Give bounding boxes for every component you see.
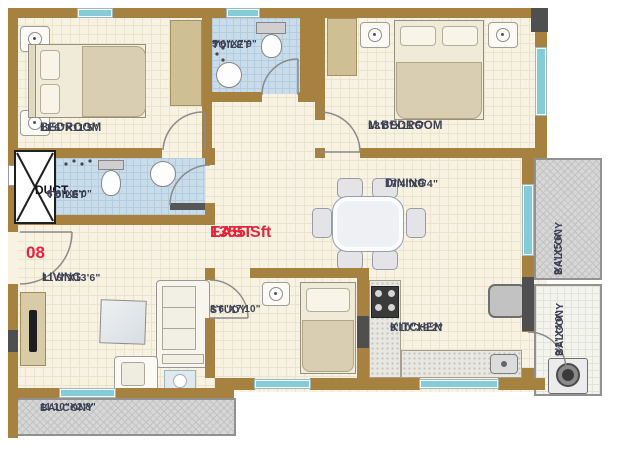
column xyxy=(531,8,548,32)
pillow xyxy=(40,84,60,114)
wardrobe xyxy=(170,20,202,106)
fridge xyxy=(488,284,526,318)
sofa-cushions xyxy=(162,286,196,350)
pillow xyxy=(306,288,350,312)
bed-headboard xyxy=(28,44,36,118)
window xyxy=(60,389,115,397)
pillow xyxy=(400,26,436,46)
lamp-icon xyxy=(496,28,510,42)
wall-segment xyxy=(202,18,212,158)
study-nightstand xyxy=(262,282,290,306)
wc-tank xyxy=(256,22,286,34)
stove-burner xyxy=(375,290,382,297)
wall-segment xyxy=(202,148,215,158)
wall-segment xyxy=(250,268,367,278)
wall-segment xyxy=(535,115,547,158)
wall-segment xyxy=(315,148,325,158)
bed-blanket xyxy=(302,320,354,372)
wc-toilet xyxy=(101,170,121,196)
tv xyxy=(29,310,37,352)
lamp-icon xyxy=(269,287,283,301)
wall-segment xyxy=(205,318,215,378)
wall-segment xyxy=(212,92,262,102)
wash-basin xyxy=(216,62,242,88)
window xyxy=(227,9,259,17)
dining-chair xyxy=(337,178,363,198)
wall-segment xyxy=(360,148,547,158)
column xyxy=(357,316,369,348)
wardrobe xyxy=(327,18,357,76)
pillow xyxy=(40,50,60,80)
dining-chair xyxy=(406,208,426,238)
bed-blanket xyxy=(396,62,482,119)
dining-chair xyxy=(372,250,398,270)
wall-segment xyxy=(522,158,534,185)
facing-label: EAST xyxy=(210,224,253,242)
window xyxy=(78,9,112,17)
sink-drain xyxy=(501,361,507,367)
wall-segment xyxy=(310,378,420,390)
bed-blanket xyxy=(82,46,146,117)
floor-plan: BEDROOM 11'6"X11'5" TOILET 5'6"X7'9" M.B… xyxy=(0,0,640,450)
wall-segment xyxy=(522,368,534,390)
wall-segment xyxy=(205,158,215,165)
pillow xyxy=(442,26,478,46)
column xyxy=(8,330,18,352)
wall-segment xyxy=(300,18,315,102)
dining-chair xyxy=(337,250,363,270)
wash-basin xyxy=(150,161,176,187)
wall-segment xyxy=(205,203,215,225)
wc-tank xyxy=(98,160,124,170)
washing-machine-drum-inner xyxy=(562,369,574,381)
window xyxy=(255,380,310,388)
wall-segment xyxy=(215,378,255,390)
room-label-balcony-east-bottom: BALCONY 9'2"X4'0" xyxy=(554,256,582,356)
wall-segment xyxy=(205,268,215,280)
coffee-table xyxy=(99,299,147,345)
window xyxy=(420,380,498,388)
dining-table xyxy=(332,196,404,252)
nightstand xyxy=(360,22,390,48)
wall-segment xyxy=(8,388,60,398)
wc-toilet xyxy=(261,34,282,58)
entrance-opening xyxy=(8,232,18,284)
sofa-chaise xyxy=(162,354,204,364)
lamp-icon xyxy=(368,28,382,42)
nightstand xyxy=(488,22,518,48)
side-table-top xyxy=(173,374,187,388)
wall-segment xyxy=(315,18,325,120)
armchair-seat xyxy=(121,362,145,386)
dining-chair xyxy=(312,208,332,238)
window xyxy=(523,185,533,255)
column xyxy=(522,277,534,331)
window xyxy=(536,48,546,115)
